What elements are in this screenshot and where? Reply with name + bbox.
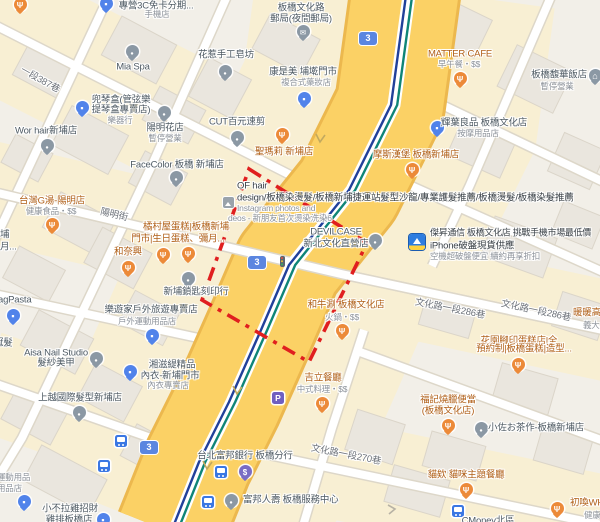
poi-label-post-office[interactable]: 板橋文化路 [278,2,325,13]
fork-knife-icon [319,395,325,411]
poi-label-of-hair-2[interactable]: design/板橋染燙髮/板橋新埔捷運站髮型沙龍/專業護髮推薦/板橋燙髮/板橋染… [237,192,574,203]
parking-icon[interactable] [272,392,284,404]
jili-pin[interactable] [316,397,329,410]
bag-icon [101,511,104,522]
poi-sublabel-3c-shop: 手機店 [145,9,170,19]
poi-label-hetaixing[interactable]: 和奈興 [114,246,142,257]
route-3-shield: 3 [359,32,377,45]
mail-icon [300,23,306,39]
poi-label-fuji-bento-2[interactable]: (板橋文化店) [422,405,474,416]
bus-stop-icon[interactable] [115,435,127,447]
fork-knife-icon [339,322,345,338]
poi-label-shangyue[interactable]: 上越國際髮型新埔店 [38,392,122,403]
chuhuan-pin[interactable] [551,502,564,515]
poi-label-cat-cafe[interactable]: 貓欸 貓咪主題餐廳 [428,469,505,480]
bag-icon [150,327,153,343]
poi-label-cut-haircut[interactable]: CUT百元速剪 [209,116,265,127]
bus-stop-icon[interactable] [215,466,227,478]
poi-label-fubon-bank[interactable]: 台北富邦銀行 板橋分行 [197,450,292,461]
kitamura-pin[interactable] [157,248,170,261]
poi-sublabel-matter-cafe: 早午餐・$$ [438,59,480,69]
flower-shop-pin[interactable] [158,106,171,119]
poi-label-outdoor-shop[interactable]: 樂遊家戶外旅遊專賣店 [104,304,197,315]
cat-cafe-pin[interactable] [460,483,473,496]
garden-cake-pin[interactable] [512,358,525,371]
poi-sublabel-of-hair: Instagram photos and [237,203,315,213]
fork-knife-icon [279,126,285,142]
poi-sublabel-jiesheng: 空機超破盤便宜 續約再享折扣 [430,251,540,261]
edge-label-fragment: 月... [0,241,17,252]
poi-label-locksmith[interactable]: 新埔鎖匙刻印行 [163,286,228,297]
poi-sublabel-jili: 中式料理・$$ [297,384,348,394]
poi-sublabel-of-hair-2: deos - 新朋友首次燙染洗染6 [228,213,332,223]
cosmed-pin[interactable] [298,92,311,105]
poi-label-mos-burger[interactable]: 摩斯漢堡 板橋新埔店 [373,149,459,160]
violin-shop-pin[interactable] [76,101,89,114]
poi-sublabel-outdoor-shop: 戶外運動用品店 [118,316,176,326]
bag-icon [128,363,131,379]
poi-label-agpasta[interactable]: agPasta [0,294,31,305]
poi-label-wagyu[interactable]: 和牛涮 板橋文化店 [308,299,385,310]
poi-label-garden-cake-2[interactable]: 預約制|板橋蛋糕|造型... [476,343,572,354]
fork-knife-icon [554,500,560,516]
dot-icon [229,492,232,508]
poi-label-hotel[interactable]: 板橋馥華飯店 [531,69,587,80]
st-mary-pin[interactable] [276,128,289,141]
post-office-pin[interactable] [297,25,310,38]
mos-burger-pin[interactable] [406,163,419,176]
poi-sublabel-flower-shop: 暫停營業 [148,133,181,143]
dot-icon [373,232,376,248]
poi-label-matter-cafe[interactable]: MATTER CAFE [428,48,492,59]
aisa-nail-pin[interactable] [90,352,103,365]
route-3-shield: 3 [140,441,158,454]
poi-label-jiesheng-2[interactable]: iPhone破盤現貨供應 [430,240,514,251]
fubon-bank-pin[interactable] [239,465,252,478]
poi-label-lingerie[interactable]: 湘滋緹精品 [149,359,196,370]
poi-label-devilcase-2[interactable]: 新北文化直營店 [303,238,368,249]
edge-label-fragment: 用品店 [0,483,22,493]
dot-icon [235,129,238,145]
devilcase-pin[interactable] [369,234,382,247]
poi-label-chuhuan[interactable]: 初喚WHA [570,497,600,508]
bag-icon [302,90,305,106]
soap-shop-pin[interactable] [219,65,232,78]
poi-sublabel-nuannuan: 義大 [583,320,600,330]
edge-label-fragment: 運動用品 [0,472,30,482]
restaurant-pin[interactable] [182,247,195,260]
facecolor-pin[interactable] [170,171,183,184]
poi-label-facecolor[interactable]: FaceColor 板橋 新埔店 [130,159,223,170]
poi-sublabel-wagyu: 火鍋・$$ [325,312,359,322]
shangyue-pin[interactable] [73,406,86,419]
gtang-pin[interactable] [46,218,59,231]
fubon-life-pin[interactable] [225,494,238,507]
shop-pin[interactable] [97,513,110,522]
dot-icon [130,43,133,59]
matter-cafe-pin[interactable] [454,72,467,85]
poi-label-cosmed[interactable]: 康是美 埔墘門市 [269,66,337,77]
poi-sublabel-cosmed: 複合式藥妝店 [281,77,331,87]
fork-knife-icon [49,216,55,232]
fork-knife-icon [17,0,23,12]
poi-label-fubon-life[interactable]: 富邦人壽 板橋服務中心 [243,494,338,505]
edge-label-fragment: 埔 [0,229,9,240]
poi-label-kitamura-2[interactable]: 門市|生日蛋糕、彌月... [131,233,224,244]
dot-icon [479,420,482,436]
poi-label-jili[interactable]: 吉立餐廳 [304,372,341,383]
dollar-icon [243,463,247,479]
bag-icon [22,493,25,509]
agpasta-pin[interactable] [7,309,20,322]
fork-knife-icon [125,259,131,275]
dot-icon [174,169,177,185]
fork-knife-icon [160,246,166,262]
lingerie-pin[interactable] [124,365,137,378]
poi-label-hueiyeh[interactable]: 輝葉良品 板橋文化店 [441,117,527,128]
wor-hair-pin[interactable] [41,139,54,152]
outdoor-shop-pin[interactable] [146,329,159,342]
poi-label-wor-hair[interactable]: Wor hair新埔店 [15,125,77,136]
locksmith-pin[interactable] [182,272,195,285]
poi-sublabel-chuhuan: 健康 [584,510,600,520]
poi-label-jiesheng[interactable]: 傑昇通信 板橋文化店 挑戰手機市場最低價 [430,228,591,239]
edge-label-fragment: 冠髮 [0,337,13,348]
dot-icon [162,104,165,120]
poi-label-kitamura[interactable]: 橘村屋蛋糕|板橋新埔 [143,221,229,232]
fork-knife-icon [463,481,469,497]
poi-label-cmoney[interactable]: CMoney北區 [462,515,515,522]
poi-label-post-office-2[interactable]: 郵局(夜間郵局) [270,13,332,24]
fork-knife-icon [515,356,521,372]
hetaixing-pin[interactable] [122,261,135,274]
poi-sublabel-gtang: 健康食品・$$ [26,206,77,216]
house-icon [592,67,597,83]
store-logo-icon[interactable] [409,234,425,250]
poi-sublabel-violin-shop: 樂器行 [108,115,133,125]
wagyu-pin[interactable] [336,324,349,337]
dot-icon [223,63,226,79]
hotel-pin[interactable] [589,69,600,82]
poi-label-kosa-tea[interactable]: 小佐お茶作-板橋新埔店 [488,422,584,433]
bag-icon [11,307,14,323]
bus-stop-icon[interactable] [98,460,110,472]
poi-sublabel-hotel: 暫停營業 [540,81,573,91]
poi-label-gtang[interactable]: 台灣G湯-陽明店 [19,195,85,206]
fork-knife-icon [185,245,191,261]
fork-knife-icon [445,417,451,433]
google-map-viewport[interactable]: 3 3 3 一段387巷 陽明街 文化路一段286巷 文化路一段286巷 文化路… [0,0,600,522]
restaurant-pin[interactable] [14,0,27,11]
fork-knife-icon [457,70,463,86]
spa-pin[interactable] [126,45,139,58]
traffic-light-icon [280,256,285,267]
bag-icon [104,0,107,11]
poi-label-nuannuan[interactable]: 暖暖高 [573,307,600,318]
poi-label-soap-shop[interactable]: 花惹手工皂坊 [198,49,254,60]
dot-icon [45,137,48,153]
dot-icon [186,270,189,286]
poi-label-st-mary[interactable]: 聖瑪莉 新埔店 [255,146,313,157]
fuji-bento-pin[interactable] [442,419,455,432]
poi-label-chicken[interactable]: 小不拉雞招財 [42,503,98,514]
bag-icon [435,119,438,135]
poi-label-devilcase[interactable]: DEVILCASE [310,226,362,237]
chicken-shop-pin[interactable] [18,495,31,508]
dot-icon [77,404,80,420]
poi-label-violin-shop-2[interactable]: 提琴盒專賣店) [92,104,151,115]
poi-label-fuji-bento[interactable]: 福記燒臘便當 [420,394,476,405]
kosa-tea-pin[interactable] [475,422,488,435]
poi-label-of-hair[interactable]: OF hair [237,180,267,191]
photo-icon[interactable] [223,197,234,208]
poi-label-flower-shop[interactable]: 陽明花店 [146,122,183,133]
cut-haircut-pin[interactable] [231,131,244,144]
phone-shop-pin[interactable] [100,0,113,10]
route-3-shield: 3 [248,256,266,269]
bag-icon [80,99,83,115]
poi-label-aisa-nail-2[interactable]: 髮紗美甲 [37,357,74,368]
poi-sublabel-lingerie: 內衣專賣店 [147,380,189,390]
poi-label-chicken-2[interactable]: 雞排板橋店 [46,514,93,522]
bus-stop-icon[interactable] [202,496,214,508]
poi-sublabel-hueiyeh: 按摩用品店 [457,128,499,138]
fork-knife-icon [409,161,415,177]
poi-label-mia-spa[interactable]: Mia Spa [116,61,149,72]
dot-icon [94,350,97,366]
